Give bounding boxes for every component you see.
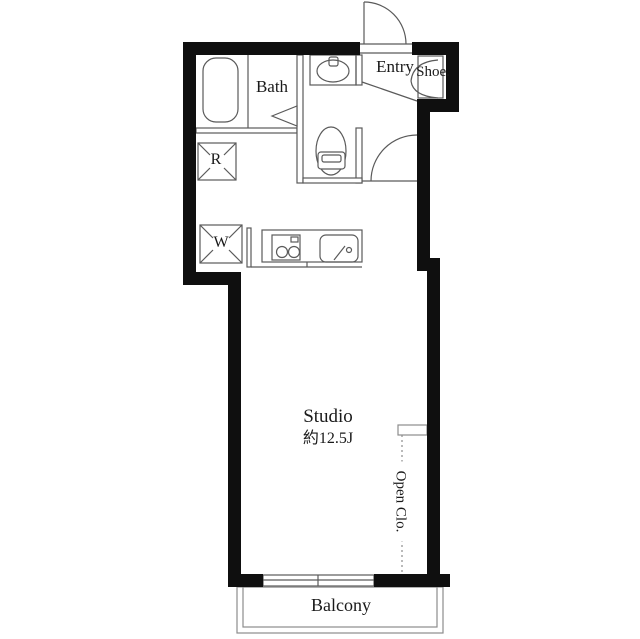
closet-shelf — [398, 425, 427, 435]
bath-label: Bath — [242, 78, 302, 97]
floor-plan-drawing — [0, 0, 640, 639]
shoe-door-arc-bottom — [411, 81, 438, 98]
front-door-swing — [364, 2, 406, 44]
washer-label: W — [206, 234, 236, 252]
studio-size-label: 約12.5J — [278, 430, 378, 448]
toilet — [316, 127, 346, 175]
washroom — [303, 55, 362, 183]
bath-door — [272, 106, 297, 126]
refrigerator-label: R — [201, 151, 231, 169]
shoe-closet-label: Shoe. — [403, 64, 463, 81]
balcony-label: Balcony — [291, 596, 391, 616]
open-closet-label: Open Clo. — [392, 462, 409, 542]
entry-area — [360, 2, 417, 181]
washbasin — [310, 55, 356, 85]
kitchen-sink — [320, 235, 358, 262]
entry-step-line — [362, 82, 417, 101]
studio-label: Studio — [278, 407, 378, 428]
stove — [272, 235, 300, 260]
walls — [183, 42, 459, 587]
floor-plan: Bath Entry Shoe. R W Studio 約12.5J Open … — [0, 0, 640, 639]
kitchen — [247, 228, 362, 267]
hall-door-swing — [371, 135, 417, 181]
bathtub — [203, 58, 238, 122]
